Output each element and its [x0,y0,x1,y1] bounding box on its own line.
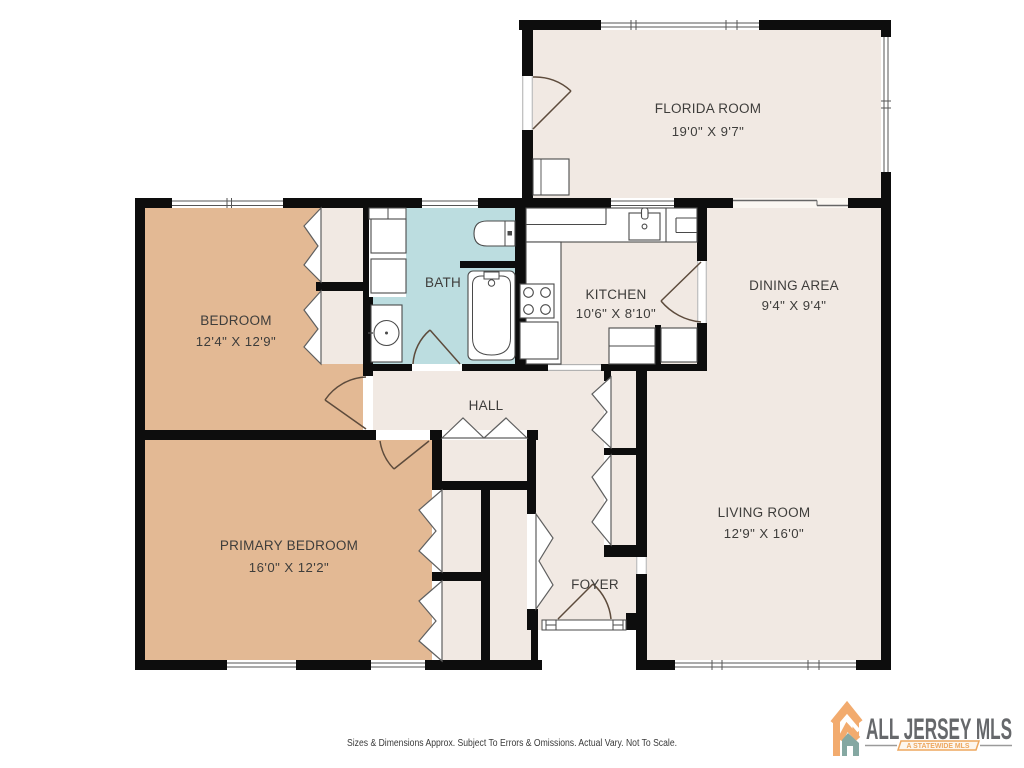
svg-text:KITCHEN: KITCHEN [585,287,646,302]
svg-text:FLORIDA ROOM: FLORIDA ROOM [655,101,762,116]
svg-text:19'0" X 9'7": 19'0" X 9'7" [672,124,745,139]
svg-text:9'4" X 9'4": 9'4" X 9'4" [762,298,827,313]
svg-text:BATH: BATH [425,275,461,290]
svg-text:16'0" X 12'2": 16'0" X 12'2" [249,560,329,575]
svg-text:FOYER: FOYER [571,577,619,592]
svg-text:12'4" X 12'9": 12'4" X 12'9" [196,334,276,349]
svg-text:LIVING ROOM: LIVING ROOM [718,505,811,520]
svg-text:BEDROOM: BEDROOM [200,313,272,328]
svg-text:Sizes & Dimensions Approx. Sub: Sizes & Dimensions Approx. Subject To Er… [347,738,677,749]
svg-text:12'9" X 16'0": 12'9" X 16'0" [724,526,804,541]
svg-text:HALL: HALL [469,398,504,413]
svg-text:PRIMARY BEDROOM: PRIMARY BEDROOM [220,538,358,553]
svg-text:DINING AREA: DINING AREA [749,278,839,293]
svg-text:10'6" X 8'10": 10'6" X 8'10" [576,306,656,321]
svg-text:A STATEWIDE MLS: A STATEWIDE MLS [907,741,970,750]
